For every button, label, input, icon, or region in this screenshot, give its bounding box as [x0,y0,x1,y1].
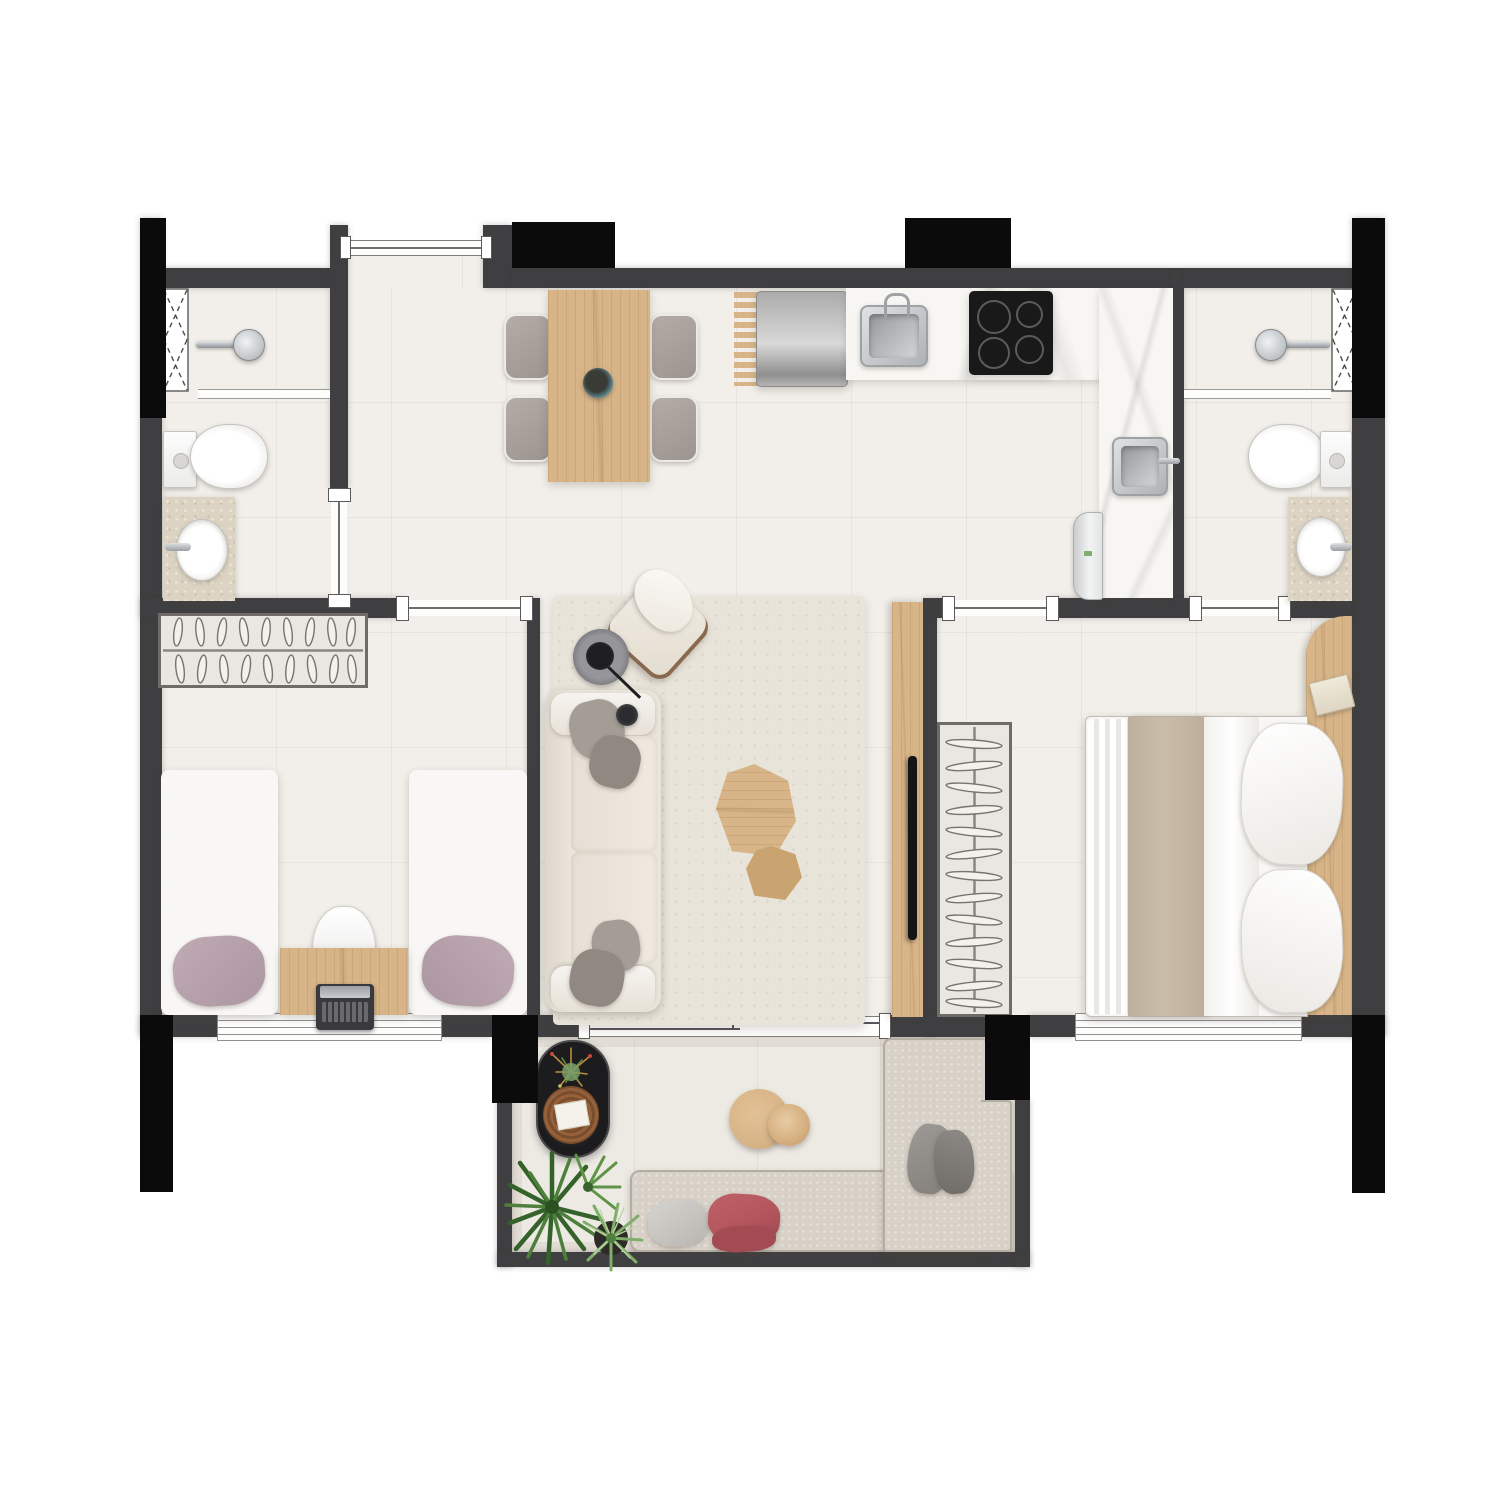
bathroom2-door [1195,600,1283,616]
taupe-blanket [1128,717,1206,1016]
bedroom1-door-jamb-right [520,596,533,621]
floor-lamp-head [586,642,614,670]
bathroom1-door [331,500,347,596]
master-bed [1085,716,1308,1017]
column-balcony-right [985,1015,1030,1100]
bedroom2-door [948,600,1051,616]
bedroom2-window [1075,1013,1302,1041]
balcony-table-small [768,1104,810,1146]
bathroom2-door-jamb-left [1189,596,1202,621]
entry-door-jamb-left [340,236,351,259]
tray-card [554,1099,590,1130]
column-bottom-right [1352,1015,1385,1193]
bathroom1-toilet-bowl [190,424,268,489]
column-bottom-left [140,1015,173,1192]
laptop-keyboard [322,1002,368,1022]
cooktop [969,291,1053,375]
dining-decor-bowl [583,368,613,398]
armchair-back-cushion [623,559,705,641]
pillow [171,933,268,1009]
entry-door-jamb-right [481,236,492,259]
pillow [420,933,517,1009]
laptop-screen [320,986,370,998]
balcony-slider-jamb-right [879,1013,891,1039]
bathroom1-shower-head [233,329,265,361]
bedroom1-door-jamb-left [396,596,409,621]
master-pillow-top [1239,721,1346,866]
balcony-right-wall [1015,1100,1030,1267]
entry-door [348,240,485,256]
dining-chair-left-bottom [504,396,552,462]
column-top-left [140,218,166,418]
bathroom2-toilet-bowl [1248,424,1326,489]
burner [978,337,1010,369]
washer-control [1084,551,1092,556]
burner [1015,335,1044,364]
washing-machine [1073,512,1103,600]
twin-bed-right [409,770,527,1015]
bathroom1-door-jamb-bottom [328,594,351,608]
bedroom1-living-wall [527,598,540,1037]
dining-chair-right-bottom [650,396,698,462]
bathroom2-faucet [1330,543,1352,551]
toilet-tank-body [1320,431,1352,488]
bathroom1-door-jamb-top [328,488,351,502]
bottom-wall-d [882,1015,985,1037]
burner [977,300,1011,334]
mid-wall-right-b [1051,598,1195,618]
twin-bed-left [161,770,278,1015]
kitchen-faucet [884,293,910,318]
floor-lamp-shade [616,704,638,726]
mid-wall-right-c [1283,598,1352,618]
floor-plan [0,0,1500,1500]
bedroom1-door [402,600,527,616]
bathroom1-shower-screen [198,389,330,399]
tv [908,756,917,940]
bedroom2-wardrobe [937,722,1012,1017]
column-top-center-right [905,218,1011,268]
column-top-right [1352,218,1385,418]
column-balcony-left [492,1015,538,1103]
kitchen-bathroom2-wall [1172,268,1184,598]
top-wall-left [162,268,330,288]
bathroom1-louver-window [162,288,189,392]
dining-chair-left-top [504,314,552,380]
bedroom2-door-jamb-right [1046,596,1059,621]
bottom-wall-e [1030,1015,1075,1037]
bathroom2-shower-screen [1184,389,1331,399]
bathroom2-toilet-tank [1320,431,1350,486]
dining-chair-right-top [650,314,698,380]
blanket [163,772,276,930]
top-wall-right [1184,268,1352,288]
column-top-center-left [512,222,615,268]
outdoor-sofa-corner [981,1100,1012,1252]
bathroom1-faucet [165,543,191,551]
bedroom1-wardrobe [158,613,368,688]
bedroom2-door-jamb-left [942,596,955,621]
blanket [411,772,525,930]
burner [1016,301,1043,328]
bottom-wall-b [440,1015,492,1037]
potted-plant-small [578,1198,644,1274]
master-pillow-bottom [1239,867,1346,1014]
sheet-fold [1088,719,1130,1014]
top-wall-middle [512,268,1172,288]
laundry-tank-sink [1112,437,1168,496]
bathroom1-right-wall [330,225,348,488]
laundry-faucet [1158,458,1180,464]
sofa-back [545,690,571,1012]
refrigerator [756,291,848,387]
laptop [316,984,374,1030]
sofa [545,690,661,1012]
bathroom2-shower-head [1255,329,1287,361]
living-bedroom2-wall [923,598,937,1037]
